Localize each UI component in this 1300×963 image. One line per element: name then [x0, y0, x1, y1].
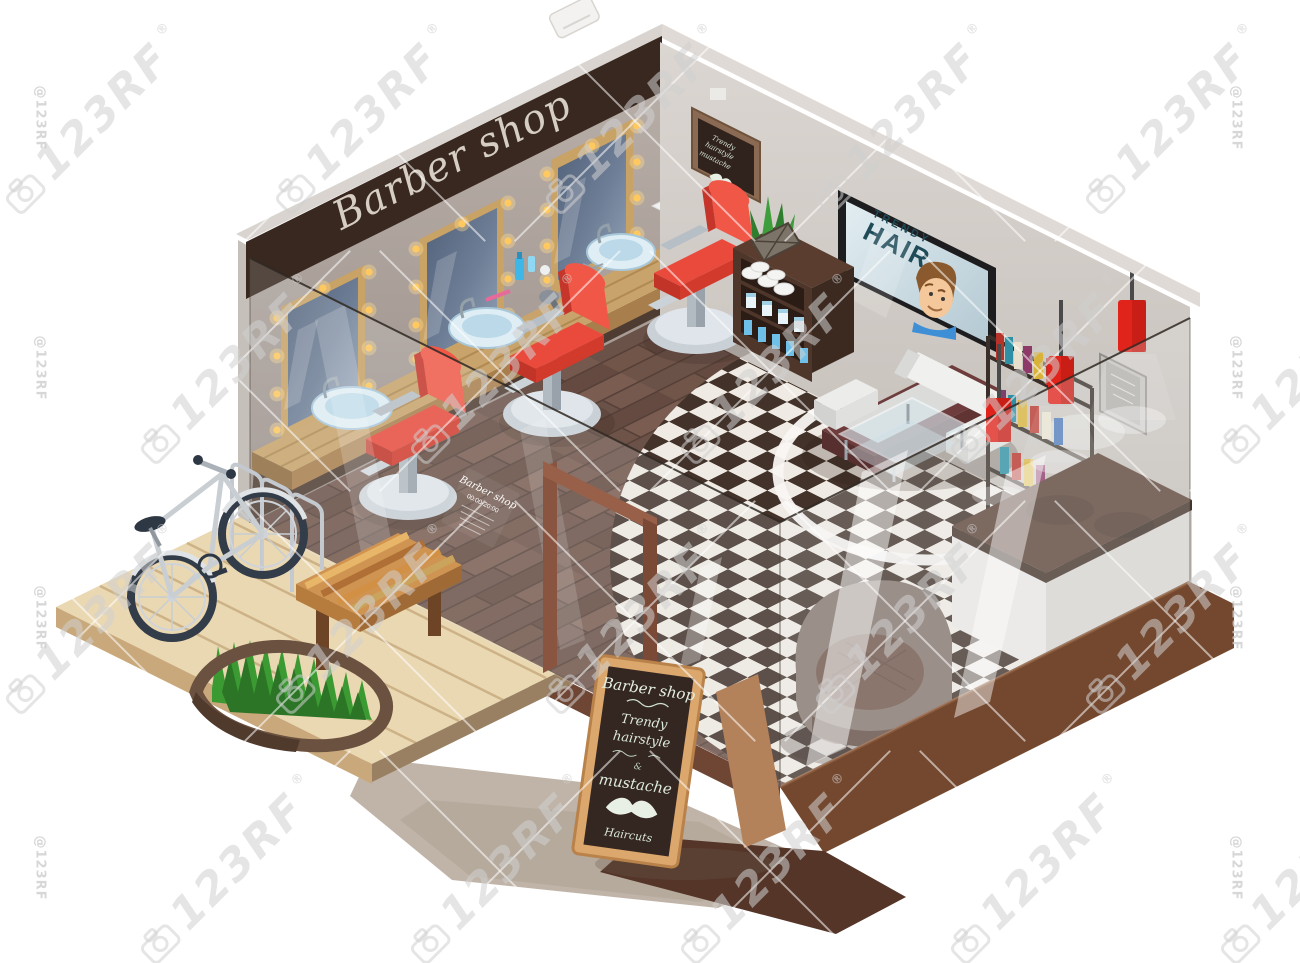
- jar: [540, 265, 550, 275]
- ac-unit: [548, 0, 601, 39]
- spray-bottle: [515, 258, 524, 280]
- bottle: [528, 256, 535, 272]
- stock-image-canvas: Barber shop: [0, 0, 1300, 963]
- barbershop-isometric-illustration: Barber shop: [0, 0, 1300, 963]
- aframe-amp: &: [633, 762, 642, 773]
- chalkboard-hanger: [710, 88, 726, 100]
